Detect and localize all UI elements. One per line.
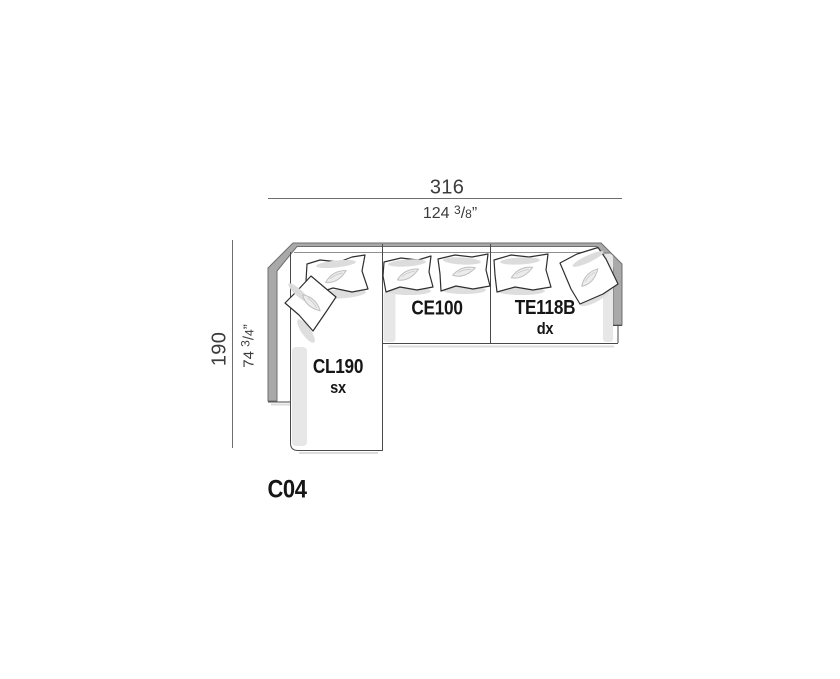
width-dimension-inches: 124 3/8” bbox=[423, 205, 477, 223]
configuration-code-label: C04 bbox=[267, 476, 306, 505]
module-side-sx: sx bbox=[313, 378, 363, 397]
pillow-sketch-ce100-right bbox=[438, 254, 490, 291]
depth-inches-unit: ” bbox=[241, 324, 258, 329]
depth-dimension-inches: 74 3/4” bbox=[241, 324, 258, 367]
depth-inches-frac-den: 4 bbox=[243, 329, 257, 336]
module-label-ce100: CE100 bbox=[411, 299, 462, 320]
module-code-te118b: TE118B bbox=[515, 298, 576, 319]
sofa-configuration-diagram: 316 124 3/8” 190 74 3/4” CE100 TE118B dx… bbox=[0, 0, 840, 679]
depth-inches-frac-num: 3 bbox=[239, 340, 253, 347]
width-inches-frac-num: 3 bbox=[454, 203, 461, 217]
width-inches-unit: ” bbox=[472, 205, 477, 222]
width-inches-whole: 124 bbox=[423, 205, 450, 222]
width-inches-frac-den: 8 bbox=[465, 207, 472, 221]
chaise-inner-shadow bbox=[292, 347, 307, 446]
module-code-cl190: CL190 bbox=[313, 357, 363, 378]
pillow-sketch-te118b bbox=[494, 254, 551, 292]
module-label-cl190: CL190 sx bbox=[313, 357, 363, 397]
depth-dimension-cm: 190 bbox=[209, 332, 232, 366]
depth-inches-whole: 74 bbox=[241, 351, 258, 368]
ce100-edge-shadow bbox=[384, 292, 396, 342]
width-dimension-cm: 316 bbox=[430, 177, 464, 200]
module-side-dx: dx bbox=[515, 319, 576, 338]
sofa-top-view-drawing bbox=[0, 0, 840, 679]
module-label-te118b: TE118B dx bbox=[515, 298, 576, 338]
pillow-sketch-ce100-left bbox=[383, 256, 433, 292]
